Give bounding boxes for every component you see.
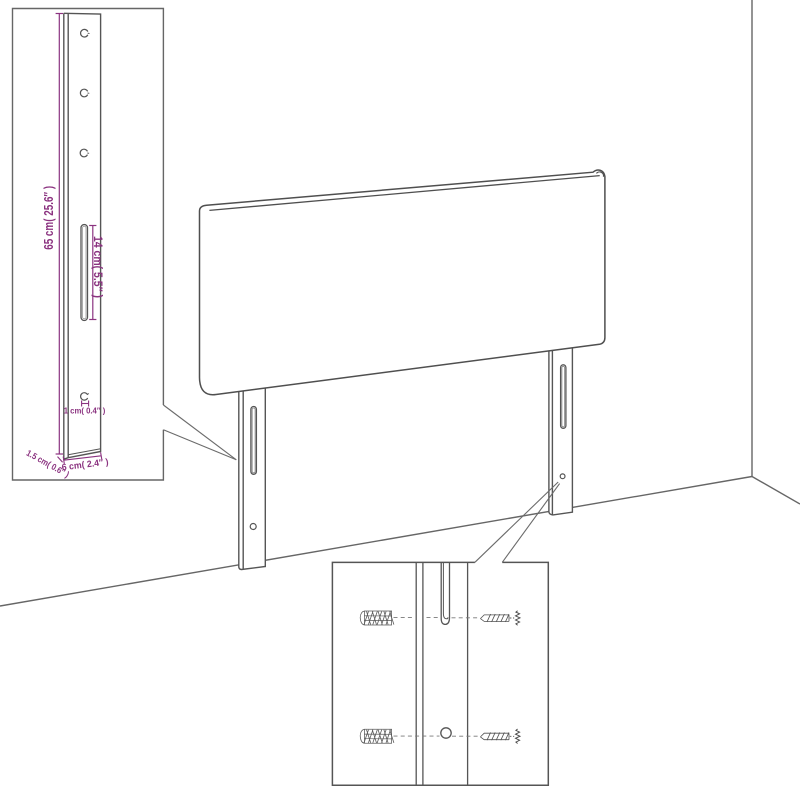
- svg-text:65 cm( 25.6″ ): 65 cm( 25.6″ ): [41, 186, 56, 250]
- svg-text:1 cm( 0.4″ ): 1 cm( 0.4″ ): [64, 405, 106, 415]
- svg-text:14 cm( 5.5″ ): 14 cm( 5.5″ ): [91, 236, 103, 298]
